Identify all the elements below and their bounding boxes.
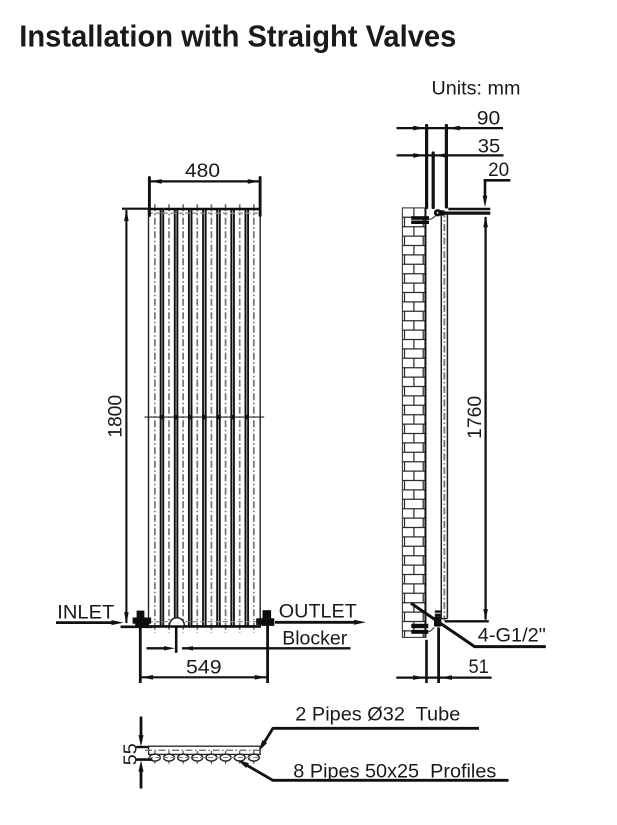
svg-text:549: 549 xyxy=(186,658,222,679)
svg-text:1760: 1760 xyxy=(465,396,486,439)
svg-text:35: 35 xyxy=(478,137,501,158)
svg-text:Blocker: Blocker xyxy=(282,628,347,650)
svg-text:90: 90 xyxy=(477,108,501,129)
svg-text:INLET: INLET xyxy=(57,601,114,623)
svg-text:20: 20 xyxy=(488,160,509,181)
svg-text:2 Pipes Ø32 Tube: 2 Pipes Ø32 Tube xyxy=(295,703,460,725)
svg-text:OUTLET: OUTLET xyxy=(279,600,357,622)
svg-text:4-G1/2": 4-G1/2" xyxy=(478,625,546,646)
svg-text:Installation with Straight Val: Installation with Straight Valves xyxy=(19,18,456,53)
svg-text:51: 51 xyxy=(468,657,488,678)
svg-text:55: 55 xyxy=(119,743,140,765)
svg-text:480: 480 xyxy=(185,161,220,182)
svg-text:1800: 1800 xyxy=(105,395,126,438)
svg-text:Units: mm: Units: mm xyxy=(432,77,521,99)
